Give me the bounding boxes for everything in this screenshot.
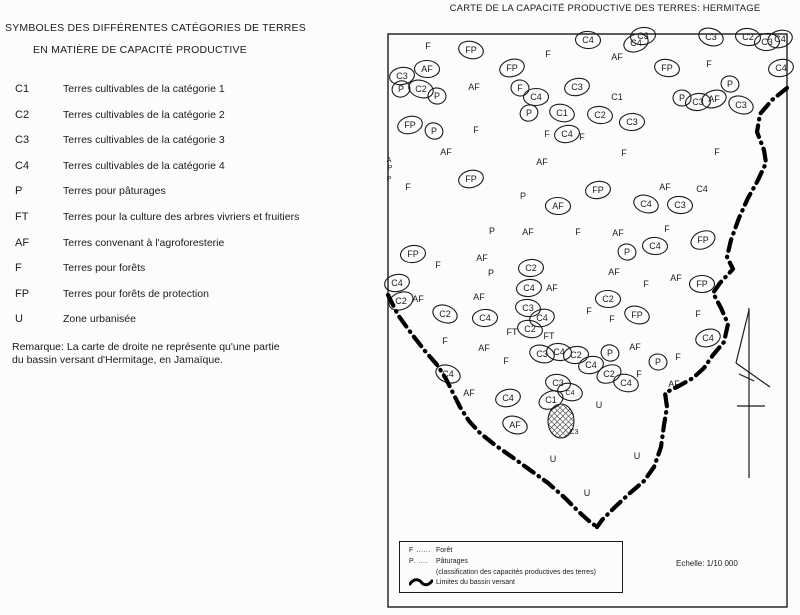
map-region-label: P xyxy=(520,191,526,201)
map-region-label: P xyxy=(624,247,630,257)
map-region-label: C4 xyxy=(775,63,787,73)
map-region-label: C1 xyxy=(545,395,557,405)
map-region-label: FP xyxy=(465,45,477,55)
map-region-label: AF xyxy=(612,228,624,238)
map-region-label: F xyxy=(575,227,581,237)
map-region-label: P xyxy=(388,165,393,172)
map-region-label: C3 xyxy=(705,32,717,42)
map-region-label: AF xyxy=(546,283,558,293)
north-arrow-line xyxy=(736,310,749,363)
map-region-label: C2 xyxy=(602,294,614,304)
inset-label: Limites du bassin versant xyxy=(436,579,515,586)
map-region-label: C2 xyxy=(603,369,615,379)
map-region-label: P xyxy=(434,91,440,101)
map-region-label: AF xyxy=(670,273,682,283)
map-region-label: F xyxy=(517,83,523,93)
map-region-label: F xyxy=(609,314,615,324)
map-region-label: AF xyxy=(608,267,620,277)
map-region-label: F xyxy=(435,260,441,270)
map-region-label: AF xyxy=(421,64,433,74)
map-region-label: C2 xyxy=(742,32,754,42)
map-region-label: AF xyxy=(412,294,424,304)
map-region-label: AF xyxy=(468,82,480,92)
map-region-label: U xyxy=(634,451,641,461)
map-region-label: C4 xyxy=(502,393,514,403)
map-region-label: C3 xyxy=(571,82,583,92)
map-region-label: AF xyxy=(440,147,452,157)
map-region-label: F xyxy=(425,41,431,51)
map-region-label: P xyxy=(488,268,494,278)
map-generated-content: FFPAFC3PC2PAFFPFFC4C3PC1C4C3C4C3C2C3C4AF… xyxy=(383,25,795,607)
map-region-label: AF xyxy=(629,342,641,352)
inset-label: Pâturages xyxy=(436,558,468,565)
hatched-zone xyxy=(548,404,574,438)
map-region-label: C4 xyxy=(696,184,708,194)
document-page: SYMBOLES DES DIFFÉRENTES CATÉGORIES DE T… xyxy=(0,0,800,615)
inset-symbol: F ...... xyxy=(409,546,436,557)
map-region-label: P xyxy=(655,357,661,367)
map-region-label: F xyxy=(544,129,550,139)
map-region-label: AF xyxy=(552,201,564,211)
map-region-label: P xyxy=(607,348,613,358)
map-region-label: C4 xyxy=(630,38,642,48)
inset-legend-row: F ......Forêt xyxy=(409,546,622,557)
map-region-label: AF xyxy=(536,157,548,167)
map-region-label: C2 xyxy=(594,110,606,120)
map-region-label: C4 xyxy=(620,378,632,388)
map-canvas: FFPAFC3PC2PAFFPFFC4C3PC1C4C3C4C3C2C3C4AF… xyxy=(0,0,800,615)
map-region-label: C4 xyxy=(479,313,491,323)
map-region-label: C4 xyxy=(561,129,573,139)
inset-symbol: P. .... xyxy=(409,557,436,568)
map-region-label: FT xyxy=(507,327,518,337)
map-region-label: F xyxy=(579,132,585,142)
map-region-label: FP xyxy=(404,120,416,130)
map-region-label: F xyxy=(586,306,592,316)
map-region-label: A xyxy=(387,157,392,164)
map-region-label: AF xyxy=(708,94,720,104)
map-region-label: F xyxy=(405,182,411,192)
map-region-label: C4 xyxy=(640,199,652,209)
map-region-label: C3 xyxy=(552,378,564,388)
map-region-label: AF xyxy=(659,182,671,192)
map-region-label: C4 xyxy=(774,34,786,44)
inset-label: (classification des capacités productive… xyxy=(436,569,596,576)
map-region-label: AF xyxy=(476,253,488,263)
map-region-label: FP xyxy=(696,279,708,289)
map-region-label: P xyxy=(387,176,392,183)
map-region-label: C4 xyxy=(566,390,575,397)
map-region-label: U xyxy=(596,400,603,410)
map-region-label: P xyxy=(489,226,495,236)
map-region-label: FP xyxy=(407,249,419,259)
map-region-label: FP xyxy=(661,63,673,73)
north-arrow-icon xyxy=(736,308,770,478)
map-region-label: AF xyxy=(478,343,490,353)
map-region-label: F xyxy=(621,148,627,158)
map-region-label: FP xyxy=(697,235,709,245)
map-region-label: FP xyxy=(506,63,518,73)
map-region-label: C2 xyxy=(570,350,582,360)
map-region-label: P xyxy=(727,79,733,89)
map-region-label: C2 xyxy=(415,84,427,94)
map-region-label: AF xyxy=(611,52,623,62)
map-region-label: F xyxy=(675,352,681,362)
map-region-label: F xyxy=(442,336,448,346)
map-region-label: C2 xyxy=(525,263,537,273)
map-region-label: P xyxy=(431,126,437,136)
map-region-label: C2 xyxy=(524,324,536,334)
map-region-label: C4 xyxy=(585,360,597,370)
map-region-label: P xyxy=(526,108,532,118)
map-region-label: C3 xyxy=(396,71,408,81)
map-scale-text: Echelle: 1/10 000 xyxy=(676,559,738,568)
map-region-label: FP xyxy=(465,174,477,184)
north-arrow-line xyxy=(739,374,754,381)
map-region-label: AF xyxy=(463,388,475,398)
map-region-label: U xyxy=(584,488,591,498)
map-region-label: U xyxy=(550,454,557,464)
map-region-label: C3 xyxy=(522,303,534,313)
map-region-label: AF xyxy=(509,420,521,430)
map-region-label: P xyxy=(398,84,404,94)
map-region-label: C3 xyxy=(735,100,747,110)
watershed-line-icon xyxy=(409,578,436,591)
inset-legend-row: (classification des capacités productive… xyxy=(409,568,622,579)
map-region-label: F xyxy=(636,369,642,379)
map-inset-legend: F ......Forêt P. ....Pâturages (classifi… xyxy=(399,541,623,593)
map-region-label: C4 xyxy=(582,35,594,45)
inset-label: Forêt xyxy=(436,547,452,554)
map-region-label: C4 xyxy=(530,92,542,102)
inset-legend-row: Limites du bassin versant xyxy=(409,578,622,591)
map-region-label: C2 xyxy=(439,309,451,319)
map-region-label: C1 xyxy=(611,92,623,102)
map-region-label: P xyxy=(679,93,685,103)
map-region-label: F xyxy=(695,309,701,319)
map-region-label: C1 xyxy=(556,108,568,118)
map-region-label: AF xyxy=(522,227,534,237)
map-region-label: AF xyxy=(473,292,485,302)
map-region-label: F xyxy=(503,356,509,366)
map-region-label: C2 xyxy=(395,296,407,306)
map-region-label: F xyxy=(706,59,712,69)
map-region-label: C3 xyxy=(626,117,638,127)
map-region-label: FP xyxy=(631,310,643,320)
map-region-label: F xyxy=(714,147,720,157)
map-region-label: F xyxy=(643,279,649,289)
map-region-label: C4 xyxy=(536,313,548,323)
map-region-label: F xyxy=(473,125,479,135)
map-region-label: C4 xyxy=(523,283,535,293)
map-region-label: C3 xyxy=(674,200,686,210)
map-region-label: FT xyxy=(544,331,555,341)
map-region-label: FP xyxy=(592,185,604,195)
map-region-label: C4 xyxy=(649,241,661,251)
map-region-label: C4 xyxy=(702,333,714,343)
map-region-label: F xyxy=(664,224,670,234)
map-region-label: F xyxy=(545,49,551,59)
inset-legend-row: P. ....Pâturages xyxy=(409,557,622,568)
map-region-label: C4 xyxy=(391,278,403,288)
